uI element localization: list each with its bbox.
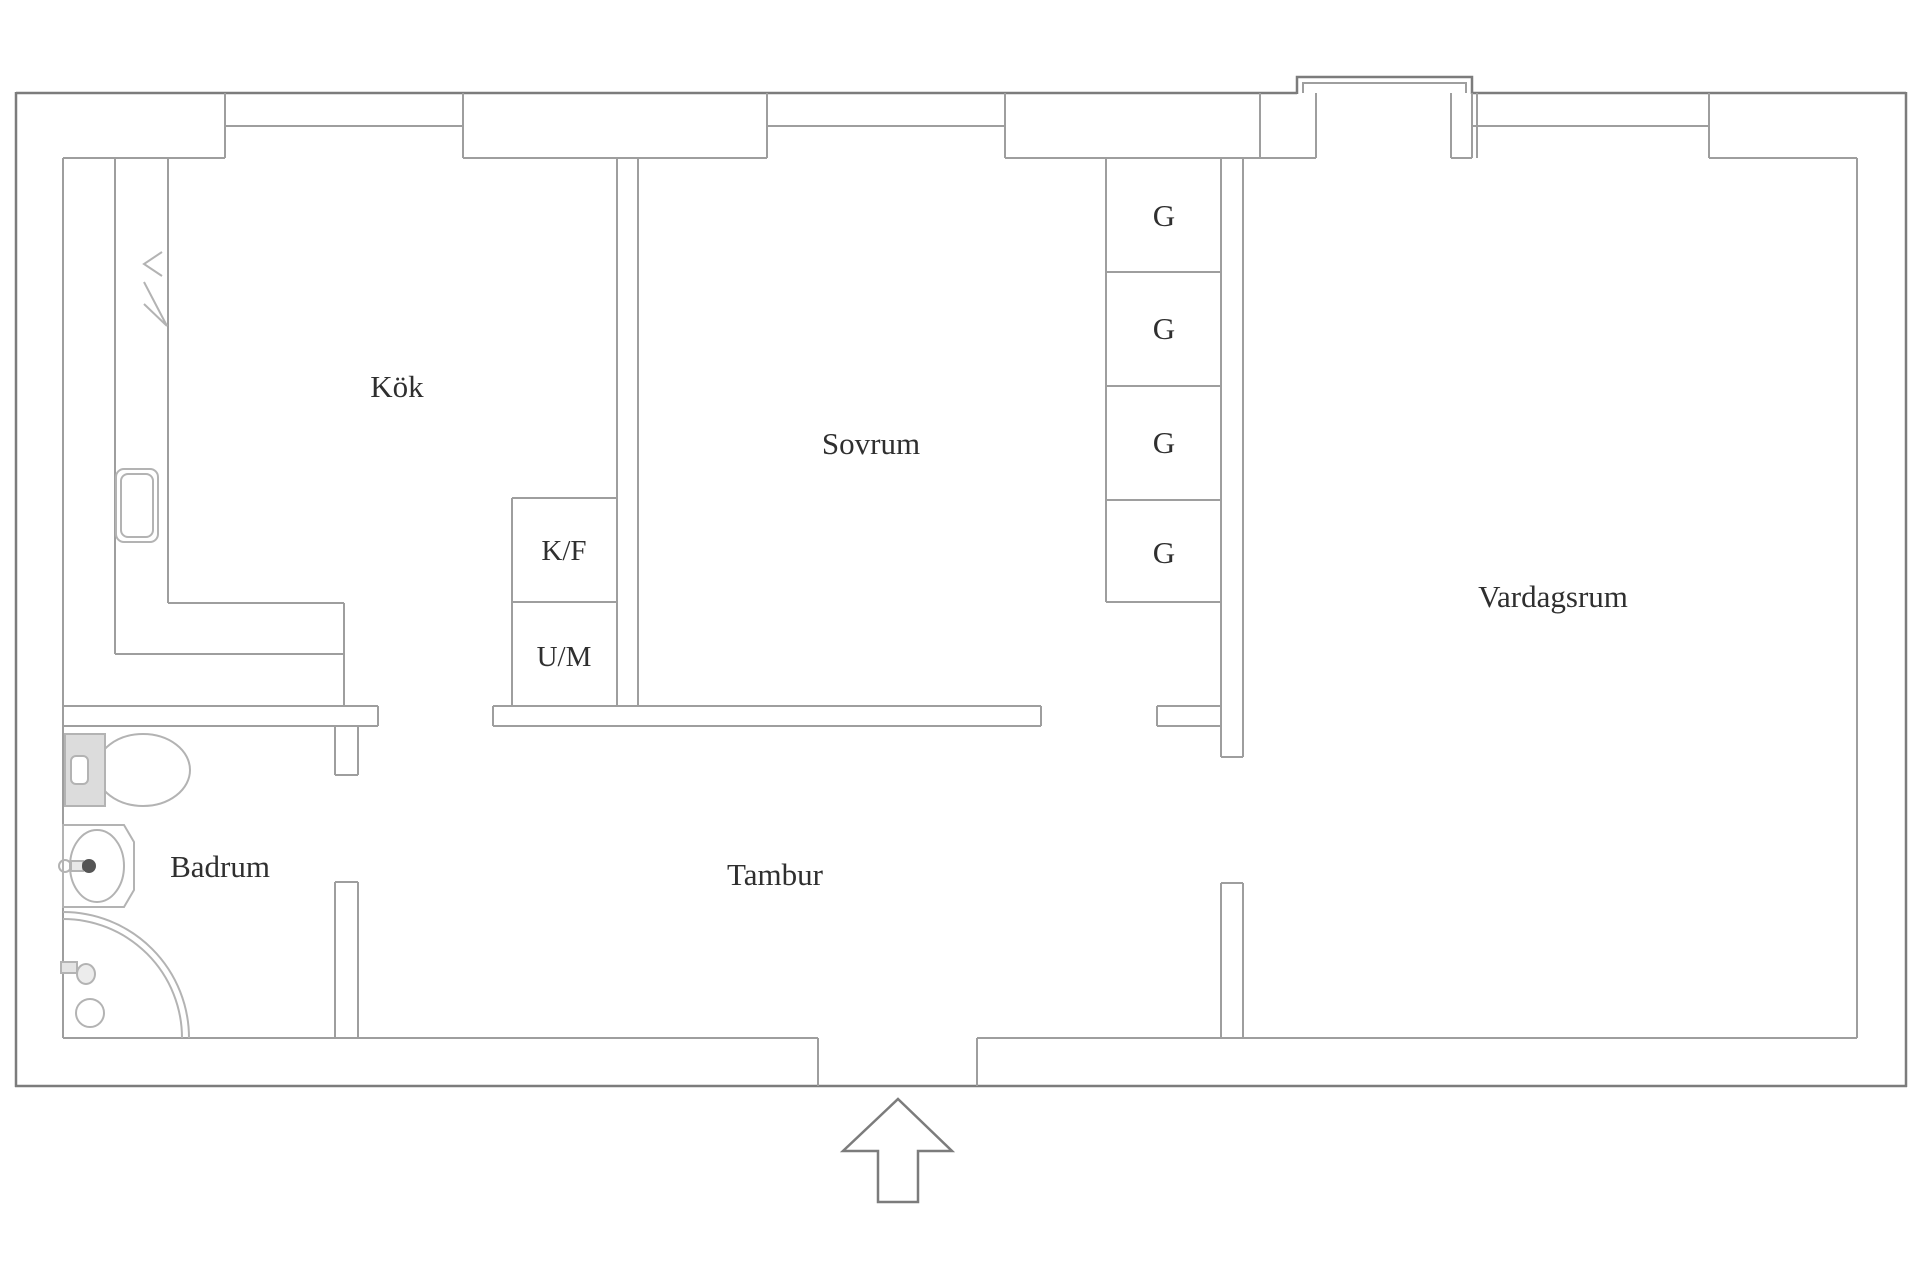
wall-kitchen-bedroom [617, 158, 638, 706]
bathroom-fixtures [59, 734, 190, 1038]
kitchen-sink-inner [121, 474, 153, 537]
wardrobe-label-3: G [1153, 425, 1175, 460]
washbasin-faucet-stem [71, 861, 83, 871]
room-labels: Kök Sovrum Vardagsrum Badrum Tambur [170, 369, 1628, 892]
wardrobe-label-4: G [1153, 535, 1175, 570]
kitchen-counter [115, 158, 344, 706]
washbasin-drain-dot [82, 859, 96, 873]
window-living-room [1472, 93, 1709, 158]
bathroom-label: Badrum [170, 849, 270, 884]
hallway-label: Tambur [727, 857, 824, 892]
wardrobe-label-2: G [1153, 311, 1175, 346]
kitchen-fixtures [116, 252, 167, 542]
toilet-bowl-icon [96, 734, 190, 806]
floor-plan-drawing: Kök Sovrum Vardagsrum Badrum Tambur K/F … [0, 0, 1920, 1280]
wall-bathroom-east [335, 726, 358, 1038]
balcony-recess-outer [1297, 77, 1472, 94]
living-room-label: Vardagsrum [1478, 579, 1628, 614]
fridge-freezer-label: K/F [541, 535, 586, 567]
bedroom-label: Sovrum [822, 426, 920, 461]
window-bedroom [767, 93, 1005, 158]
wardrobe-label-1: G [1153, 198, 1175, 233]
appliance-column [512, 498, 617, 706]
window-kitchen [225, 93, 463, 158]
entry-door-jambs [818, 1038, 977, 1086]
entry-arrow-icon [843, 1099, 952, 1202]
shower-handle-icon [61, 962, 77, 973]
floor-plan: Kök Sovrum Vardagsrum Badrum Tambur K/F … [0, 0, 1920, 1280]
stove-icon [144, 252, 167, 326]
wall-hallway-top [63, 706, 1221, 726]
toilet-flush-button [71, 756, 88, 784]
kitchen-sink-icon [116, 469, 158, 542]
shower-drain-icon [76, 999, 104, 1027]
kitchen-label: Kök [370, 369, 424, 404]
wall-living-room-west [1221, 158, 1243, 1038]
washing-machine-label: U/M [537, 641, 592, 673]
shower-head-icon [77, 964, 95, 984]
